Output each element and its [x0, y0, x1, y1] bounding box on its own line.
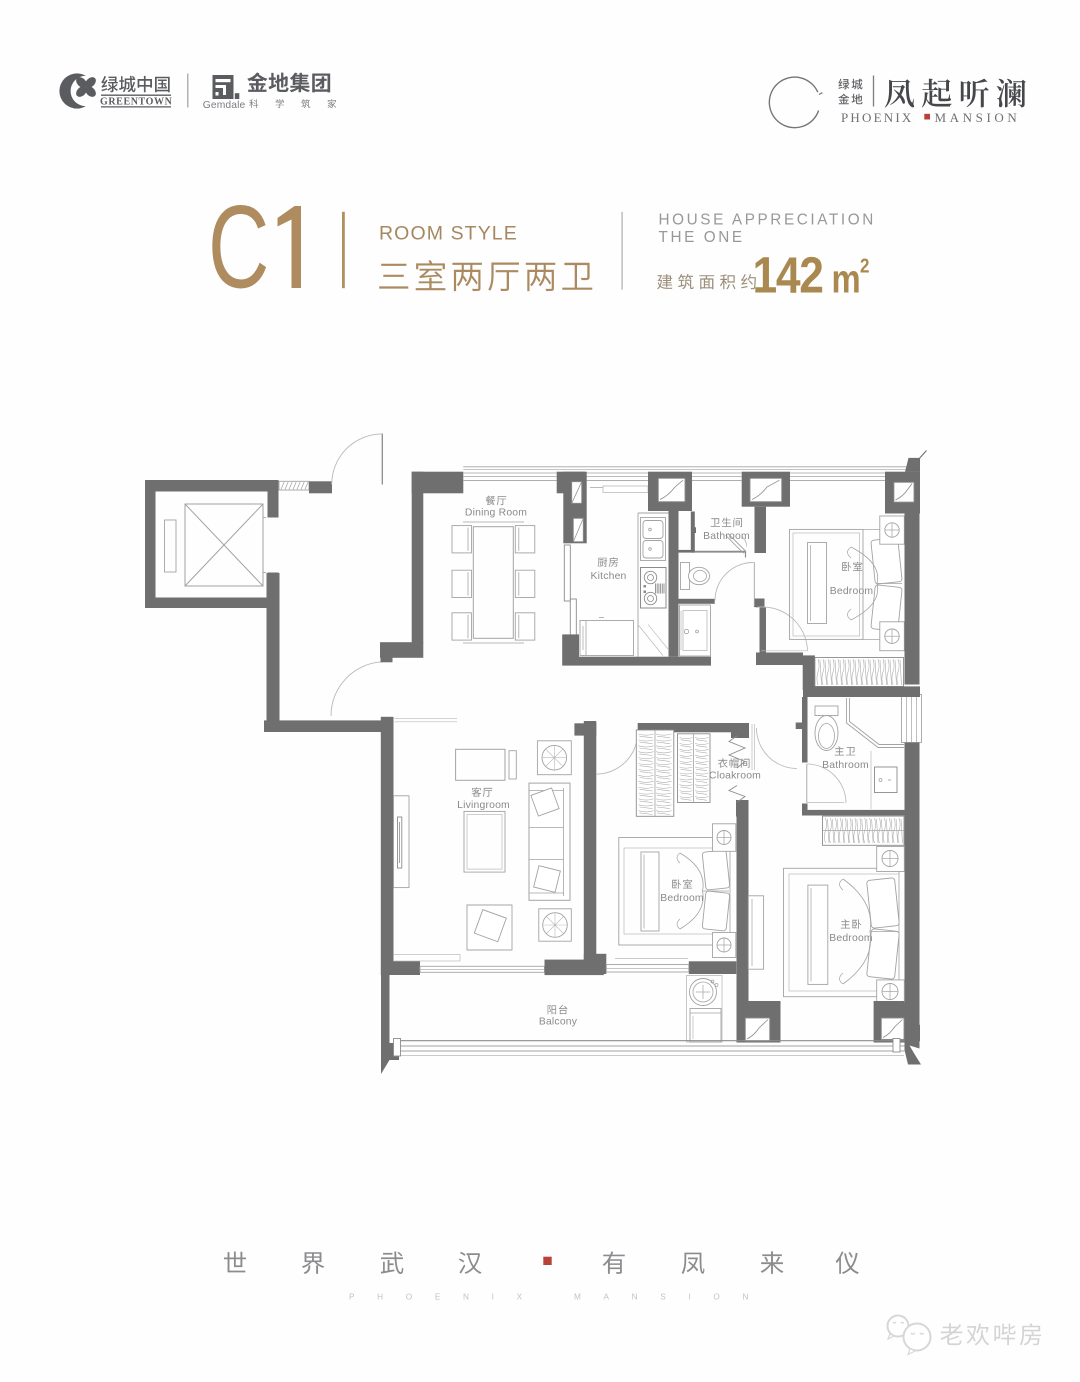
svg-text:MANSION: MANSION [935, 110, 1021, 125]
svg-text:PHOENIX: PHOENIX [349, 1293, 545, 1302]
svg-text:Cloakroom: Cloakroom [709, 770, 761, 781]
svg-text:Bedroom: Bedroom [660, 893, 704, 904]
svg-text:Bathroom: Bathroom [822, 760, 869, 771]
svg-text:HOUSE APPRECIATION: HOUSE APPRECIATION [659, 211, 876, 228]
svg-text:Bedroom: Bedroom [830, 586, 874, 597]
svg-text:MANSION: MANSION [574, 1293, 771, 1302]
svg-text:THE ONE: THE ONE [659, 229, 745, 246]
svg-text:Bathroom: Bathroom [703, 531, 750, 542]
svg-text:142: 142 [753, 248, 823, 305]
svg-text:Balcony: Balcony [539, 1016, 578, 1027]
svg-text:Bedroom: Bedroom [829, 933, 873, 944]
svg-text:2: 2 [860, 254, 869, 277]
svg-text:PHOENIX: PHOENIX [841, 110, 913, 125]
svg-text:C: C [208, 181, 272, 313]
svg-text:GREENTOWN: GREENTOWN [100, 96, 173, 107]
svg-text:Dining Room: Dining Room [465, 508, 527, 519]
svg-text:m: m [832, 256, 861, 301]
svg-text:Kitchen: Kitchen [590, 571, 626, 582]
svg-text:Livingroom: Livingroom [457, 800, 510, 811]
svg-text:Gemdale: Gemdale [203, 100, 246, 111]
svg-text:ROOM STYLE: ROOM STYLE [379, 222, 518, 244]
